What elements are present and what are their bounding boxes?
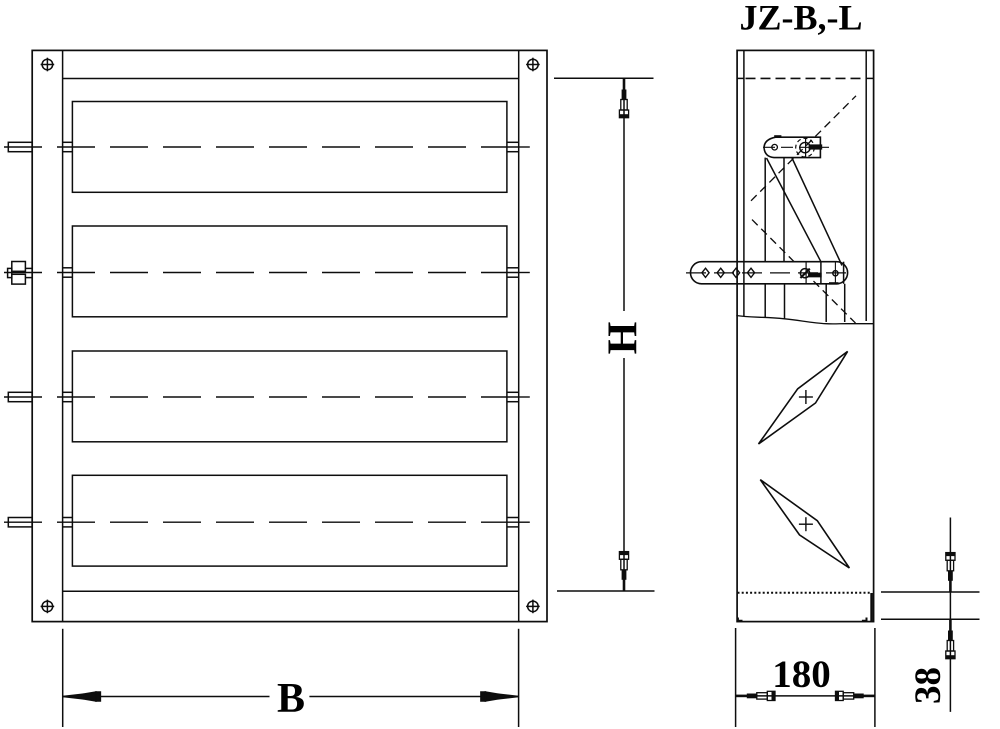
svg-text:B: B [277,676,305,722]
svg-text:H: H [601,322,647,355]
svg-text:180: 180 [772,653,831,696]
svg-text:38: 38 [908,667,949,704]
svg-text:JZ-B,-L: JZ-B,-L [739,0,862,38]
